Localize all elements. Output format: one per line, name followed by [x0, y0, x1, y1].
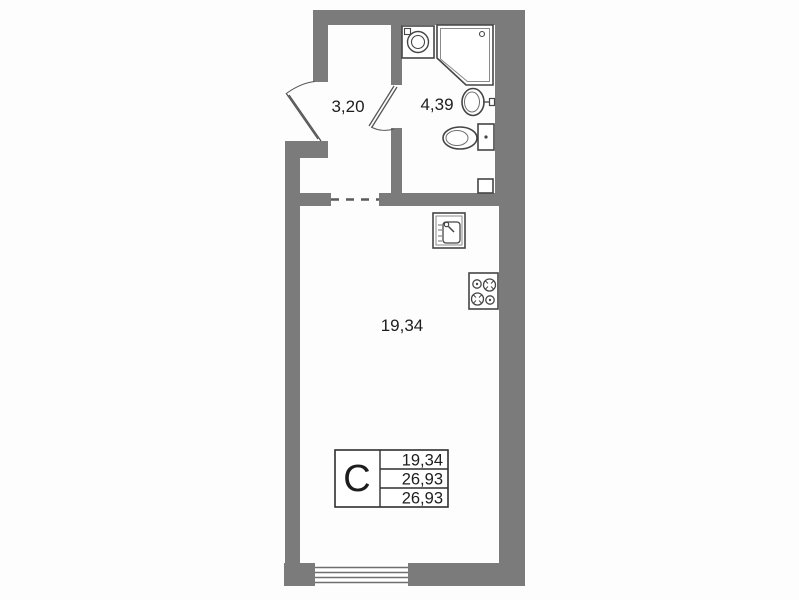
- legend-row-overall-area: 26,93: [402, 490, 443, 508]
- bathroom-left-wall-lower: [391, 128, 402, 206]
- top-wall: [313, 10, 525, 25]
- legend-row-living-area: 19,34: [402, 452, 443, 470]
- right-wall-main: [499, 206, 525, 586]
- legend-row-total-area: 26,93: [402, 471, 443, 489]
- window-icon: [315, 563, 408, 586]
- floor-plan-drawing: 3,20 4,39 19,34 С 19,34 26,93 26,93: [0, 0, 799, 600]
- washbasin-icon: [462, 89, 495, 116]
- hallway-area-label: 3,20: [331, 97, 364, 116]
- toilet-icon: [443, 124, 494, 150]
- bathroom-left-wall-upper: [391, 25, 402, 85]
- kitchen-sink-icon: [433, 213, 465, 248]
- legend-table: С 19,34 26,93 26,93: [335, 450, 448, 508]
- washing-machine-icon: [402, 26, 434, 58]
- bathroom-area-label: 4,39: [420, 95, 453, 114]
- right-wall-bathroom: [495, 10, 525, 206]
- stove-icon: [469, 273, 498, 309]
- living-room-area-label: 19,34: [381, 316, 424, 335]
- floor-plan-page: 3,20 4,39 19,34 С 19,34 26,93 26,93: [0, 0, 799, 600]
- legend-type-label: С: [343, 458, 370, 500]
- hall-left-wall: [313, 25, 328, 82]
- shower-cabin-icon: [437, 25, 493, 85]
- bathroom-door-icon: [369, 86, 397, 130]
- entry-door-icon: [286, 82, 321, 142]
- hall-room-divider: [285, 193, 331, 206]
- vent-duct-icon: [478, 179, 493, 193]
